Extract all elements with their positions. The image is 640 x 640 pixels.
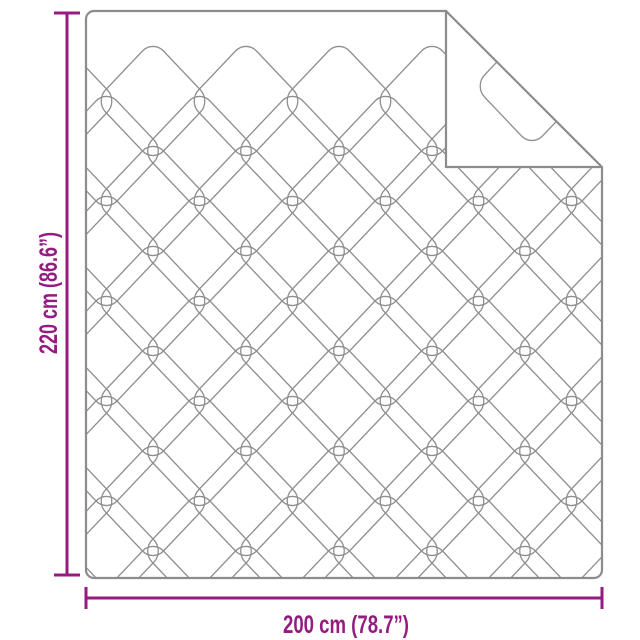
blanket [2,11,640,640]
product-diagram: 220 cm (86.6”) 200 cm (78.7”) [0,0,640,640]
width-dimension-line [86,587,602,609]
blanket-dimension-drawing: 220 cm (86.6”) 200 cm (78.7”) [0,0,640,640]
width-dimension-label: 200 cm (78.7”) [283,611,409,639]
height-dimension-label: 220 cm (86.6”) [35,232,63,354]
